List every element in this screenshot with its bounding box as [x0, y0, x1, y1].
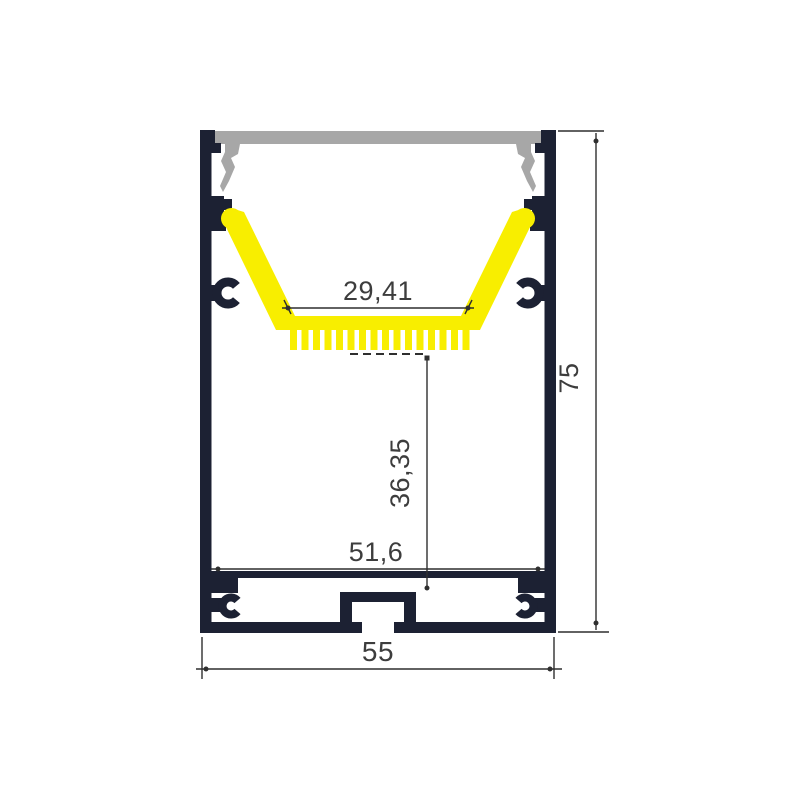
dim-dot	[548, 667, 553, 672]
dim-dot	[286, 306, 291, 311]
drawing-canvas: 29,41 36,35 51,6	[0, 0, 800, 800]
dim-dot	[594, 621, 599, 626]
dim-dot	[204, 667, 209, 672]
inner-floor-plate	[211, 571, 545, 578]
dimension-led-seat-width: 29,41	[282, 276, 474, 314]
mounting-slot-channel	[340, 592, 416, 633]
dim-dot	[216, 567, 221, 572]
dimension-outer-width: 55	[196, 636, 562, 679]
bottom-plate	[200, 622, 556, 633]
dimension-inner-width: 51,6	[212, 537, 545, 572]
diffuser-shape	[213, 131, 543, 192]
led-tray-fins	[290, 330, 470, 350]
dimension-outer-height: 75	[554, 131, 609, 632]
lower-screw-boss	[223, 597, 238, 614]
dim-square-marker	[425, 356, 430, 361]
dim-dot	[425, 586, 430, 591]
dimension-label-inner-width: 51,6	[349, 537, 404, 567]
profile-cross-section-drawing: 29,41 36,35 51,6	[0, 0, 800, 800]
profile-right-half	[518, 130, 556, 633]
led-tray-left-lobe	[221, 208, 242, 229]
led-tray-body	[224, 208, 532, 330]
profile-side-wall	[200, 130, 212, 633]
diffuser-clip-right	[516, 144, 536, 192]
dim-dot	[466, 306, 471, 311]
dimension-label-led-seat-width: 29,41	[343, 276, 413, 306]
dim-dot	[594, 139, 599, 144]
diffuser-clip-left	[220, 144, 240, 192]
upper-screw-boss	[217, 282, 236, 304]
led-tray-right-lobe	[514, 208, 535, 229]
diffuser-rest-step	[211, 143, 221, 153]
dim-dot	[536, 567, 541, 572]
dimension-label-seat-to-base-depth: 36,35	[385, 438, 415, 508]
diffuser-plate	[213, 131, 543, 144]
dimension-label-outer-width: 55	[362, 636, 394, 667]
dimension-label-outer-height: 75	[554, 362, 584, 393]
profile-wall-top-cap	[200, 130, 215, 144]
